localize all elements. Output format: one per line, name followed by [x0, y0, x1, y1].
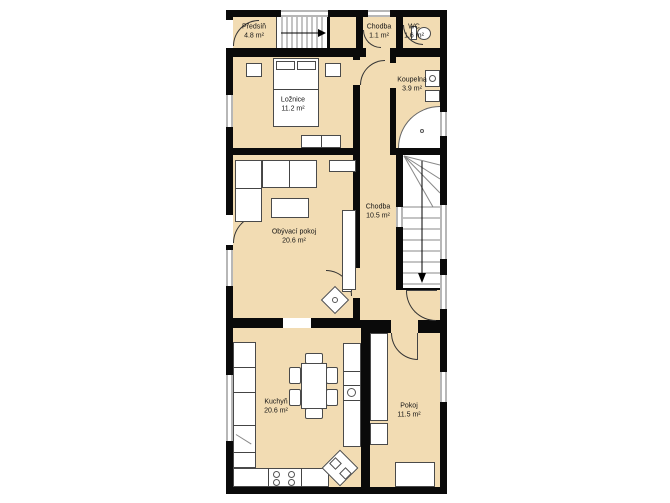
dining-table: [301, 363, 327, 409]
room-label-predsin: Předsíň 4.8 m²: [242, 24, 266, 41]
counter-bottom-div-2: [301, 468, 302, 487]
window-loznice: [226, 95, 233, 127]
floor-plan-canvas: Předsíň 4.8 m² Chodba 1.1 m² WC 1.6 m² L…: [0, 0, 670, 503]
chair-bottom: [305, 408, 323, 419]
kitchen-counter-bottom: [233, 468, 329, 487]
counter-left-div-3: [233, 425, 256, 426]
door-opening-koupelna: [390, 63, 396, 88]
pillow-left: [276, 61, 295, 70]
room-label-wc: WC 1.6 m²: [404, 24, 424, 41]
room-name-loznice: Ložnice: [281, 97, 305, 106]
window-top-chodba: [368, 10, 390, 17]
stair-landing-top: [330, 17, 356, 48]
burner-icon-3: [273, 479, 280, 486]
wardrobe-tall: [370, 333, 388, 421]
entrance-door-opening: [226, 20, 233, 48]
washing-machine-drum-icon: [429, 75, 436, 82]
shower-drain-icon: [420, 129, 424, 133]
sofa-chaise: [235, 160, 262, 222]
cooktop-icon: [347, 388, 356, 397]
stove-flue-icon: [332, 297, 338, 303]
window-top-stairs: [281, 10, 328, 17]
counter-left-div-4: [233, 452, 256, 453]
room-name-obyvaci-pokoj: Obývací pokoj: [272, 229, 316, 238]
room-name-kuchyn: Kuchyň: [264, 399, 288, 408]
counter-right-div-3: [343, 400, 361, 401]
room-area-loznice: 11.2 m²: [281, 105, 305, 114]
stairs-main-icon: [403, 155, 440, 288]
stairs-top: [276, 17, 327, 48]
sofa-seam-2: [289, 160, 290, 188]
burner-icon-2: [288, 471, 295, 478]
room-label-loznice: Ložnice 11.2 m²: [281, 97, 305, 114]
room-label-pokoj: Pokoj 11.5 m²: [397, 403, 420, 420]
dresser-divider: [321, 135, 322, 148]
kitchen-counter-left: [233, 342, 256, 468]
room-label-chodba: Chodba 10.5 m²: [366, 204, 391, 221]
sofa-seam-3: [235, 188, 262, 189]
room-label-koupelna: Koupelna 3.9 m²: [397, 77, 427, 94]
room-area-chodba: 10.5 m²: [366, 212, 391, 221]
room-area-predsin: 4.8 m²: [242, 32, 266, 41]
sofa-seam-1: [262, 160, 263, 188]
wardrobe-small: [370, 423, 388, 445]
room-area-chodba-top: 1.1 m²: [367, 32, 392, 41]
room-label-chodba-top: Chodba 1.1 m²: [367, 24, 392, 41]
room-name-predsin: Předsíň: [242, 24, 266, 33]
room-label-kuchyn: Kuchyň 20.6 m²: [264, 399, 288, 416]
room-name-wc: WC: [404, 24, 424, 33]
window-pokoj: [440, 372, 447, 402]
window-stairs: [440, 205, 447, 259]
pokoj-door-leaf: [417, 333, 418, 360]
room-area-wc: 1.6 m²: [404, 32, 424, 41]
nightstand-right: [325, 63, 341, 77]
room-name-pokoj: Pokoj: [397, 403, 420, 412]
door-opening-chodba-top: [366, 48, 390, 57]
room-chodba: [360, 155, 396, 320]
stairs-door-leaf: [406, 290, 437, 291]
stairwell: [403, 155, 440, 288]
bed-blanket-line: [273, 89, 319, 90]
room-area-obyvaci-pokoj: 20.6 m²: [272, 237, 316, 246]
room-label-obyvaci-pokoj: Obývací pokoj 20.6 m²: [272, 229, 316, 246]
pillow-right: [297, 61, 316, 70]
pokoj-bed: [395, 462, 435, 487]
counter-left-div-2: [233, 392, 256, 393]
window-internal-stairwell: [396, 207, 403, 227]
window-koupelna: [440, 112, 447, 136]
room-area-pokoj: 11.5 m²: [397, 411, 420, 420]
door-opening-pokoj: [391, 320, 418, 333]
window-obyvaci: [226, 250, 233, 286]
chair-right-2: [326, 389, 338, 406]
chair-top: [305, 353, 323, 364]
nightstand-left: [246, 63, 262, 77]
door-opening-kuchyn: [283, 318, 311, 328]
shelf-cabinet: [329, 160, 356, 172]
stairs-top-icon: [277, 17, 327, 48]
chair-left-1: [289, 367, 301, 384]
window-landing: [440, 275, 447, 309]
room-name-koupelna: Koupelna: [397, 77, 427, 86]
room-area-kuchyn: 20.6 m²: [264, 407, 288, 416]
chair-right-1: [326, 367, 338, 384]
room-name-chodba-top: Chodba: [367, 24, 392, 33]
burner-icon-4: [288, 479, 295, 486]
counter-right-div-1: [343, 371, 361, 372]
bathroom-cabinet: [425, 90, 440, 102]
counter-left-div-1: [233, 367, 256, 368]
coffee-table: [271, 198, 309, 218]
burner-icon-1: [273, 471, 280, 478]
chair-left-2: [289, 389, 301, 406]
floor-plan: Předsíň 4.8 m² Chodba 1.1 m² WC 1.6 m² L…: [226, 10, 447, 494]
terrace-door-opening: [226, 215, 233, 245]
door-opening-loznice: [353, 60, 360, 85]
room-area-koupelna: 3.9 m²: [397, 85, 427, 94]
tv-unit: [342, 210, 356, 290]
counter-bottom-div-1: [268, 468, 269, 487]
counter-right-div-2: [343, 385, 361, 386]
window-kuchyn: [226, 375, 233, 441]
room-name-chodba: Chodba: [366, 204, 391, 213]
